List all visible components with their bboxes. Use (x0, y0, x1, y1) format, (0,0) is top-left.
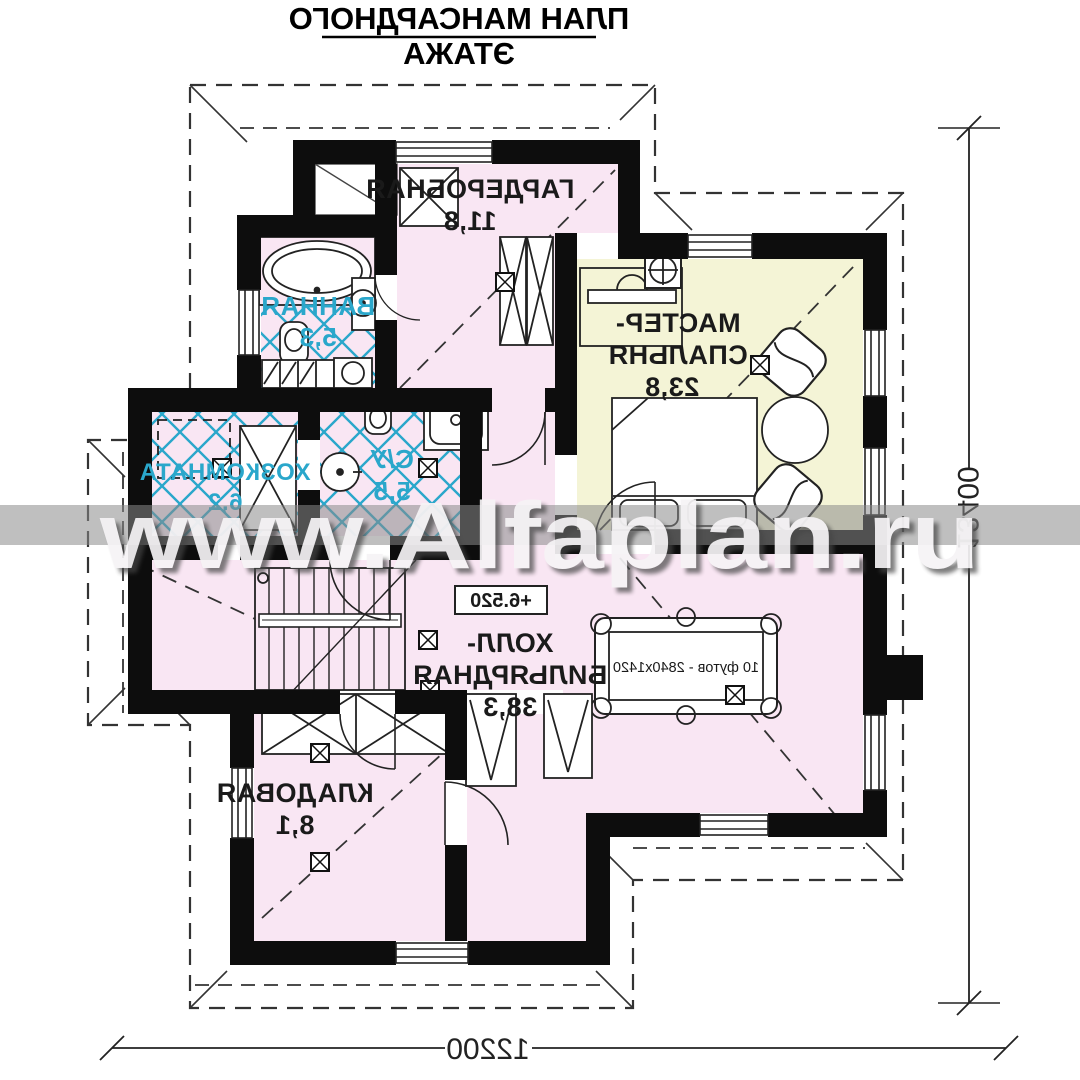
window-hall-right (865, 715, 885, 790)
window-bathroom-left (239, 290, 259, 355)
window-master-right-1 (865, 330, 885, 396)
plan-title-line2: ЭТАЖА (403, 36, 515, 71)
window-master-top (688, 235, 752, 257)
elevation-mark: +6.520 (455, 586, 547, 614)
label-wc-name: С/У (370, 444, 414, 474)
label-master-name1: МАСТЕР- (615, 308, 740, 338)
dimension-bottom (100, 1036, 1018, 1060)
label-master-name2: СПАЛЬНЯ (608, 340, 748, 370)
label-storage-name: КЛАДОВАЯ (216, 778, 373, 808)
label-bathroom-name: ВАННАЯ (261, 291, 375, 321)
label-utility-name: ХОЗКОМНАТА (139, 459, 310, 486)
label-hall-name2: БИЛЬЯРДНАЯ (413, 660, 608, 690)
elevation-text: +6.520 (470, 590, 532, 612)
label-bathroom-area: 5,3 (299, 322, 337, 352)
label-wardrobe-area: 11,8 (443, 206, 496, 236)
billiard-size-text: 10 футов - 2840х1420 (613, 660, 759, 676)
label-hall-name1: ХОЛЛ- (466, 628, 553, 658)
dimension-width-text: 12200 (446, 1033, 529, 1066)
plan-title-line1: ПЛАН МАНСАРДНОГО (289, 1, 630, 36)
washer-and-counter (262, 358, 372, 388)
floor-plan-svg: ГАРДЕРОБНАЯ 11,8 ВАННАЯ 5,3 МАСТЕР- СПАЛ… (0, 0, 1080, 1080)
label-hall-area: 38,3 (483, 692, 538, 722)
floor-plan-page: { "title": { "line1": "ПЛАН МАНСАРДНОГО"… (0, 0, 1080, 1080)
round-table (762, 397, 828, 463)
watermark: www.Alfaplan.ru (0, 483, 1080, 589)
window-top (396, 142, 492, 162)
window-hall-bottom (700, 815, 768, 835)
label-master-area: 23,8 (645, 372, 700, 402)
label-wardrobe-name: ГАРДЕРОБНАЯ (366, 174, 575, 204)
plan-title: ПЛАН МАНСАРДНОГО ЭТАЖА (289, 1, 630, 71)
watermark-text: www.Alfaplan.ru (99, 483, 980, 589)
label-storage-area: 8,1 (275, 810, 314, 840)
window-storage-bottom (396, 943, 468, 963)
